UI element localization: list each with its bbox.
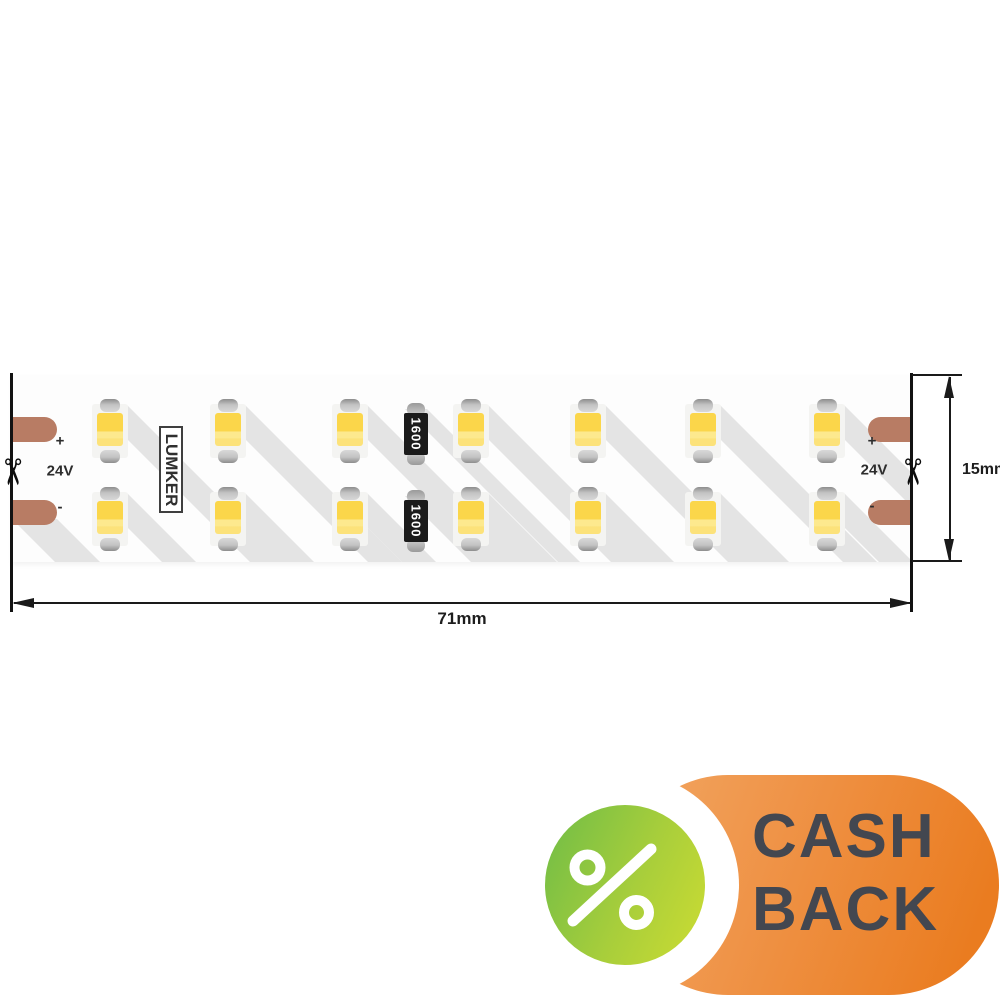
led-emitter <box>690 501 716 534</box>
cashback-green-circle <box>545 805 705 965</box>
led-electrode-top <box>218 399 238 412</box>
led-emitter <box>814 413 840 446</box>
cashback-line1: CASH <box>752 800 939 873</box>
led-electrode-bottom <box>693 538 713 551</box>
smd-led <box>453 399 489 463</box>
led-electrode-top <box>218 487 238 500</box>
led-electrode-bottom <box>817 450 837 463</box>
led-electrode-bottom <box>218 538 238 551</box>
led-electrode-top <box>340 399 360 412</box>
solder-pad-left-minus <box>12 500 57 525</box>
resistor-value-label: 1600 <box>409 505 424 538</box>
solder-pad-right-minus <box>868 500 912 525</box>
brand-logo: LUMKER <box>159 426 183 513</box>
led-emitter <box>458 413 484 446</box>
smd-led <box>809 399 845 463</box>
width-arrow-right <box>890 598 912 608</box>
led-electrode-bottom <box>100 538 120 551</box>
led-electrode-top <box>693 399 713 412</box>
led-emitter <box>690 413 716 446</box>
solder-pad-left-plus <box>12 417 57 442</box>
resistor-body: 1600 <box>404 500 428 542</box>
cut-line-right <box>910 373 913 612</box>
smd-led <box>332 487 368 551</box>
smd-resistor: 1600 <box>404 403 428 465</box>
height-dimension-label: 15mm <box>962 461 1000 479</box>
resistor-value-label: 1600 <box>409 418 424 451</box>
width-dimension-label: 71mm <box>412 609 512 629</box>
smd-led <box>92 399 128 463</box>
voltage-label-left: 24V <box>47 463 74 480</box>
led-electrode-top <box>461 399 481 412</box>
smd-led <box>685 399 721 463</box>
cashback-line2: BACK <box>752 873 939 946</box>
smd-led <box>210 487 246 551</box>
led-electrode-top <box>817 399 837 412</box>
width-arrow-left <box>12 598 34 608</box>
led-emitter <box>337 501 363 534</box>
smd-led <box>332 399 368 463</box>
led-electrode-bottom <box>693 450 713 463</box>
minus-label-left: - <box>58 499 63 516</box>
smd-led <box>210 399 246 463</box>
led-electrode-bottom <box>461 538 481 551</box>
led-electrode-top <box>578 487 598 500</box>
led-strip: 16001600 + 24V - + 24V - LUMKER <box>12 375 912 562</box>
led-electrode-top <box>100 399 120 412</box>
led-emitter <box>97 413 123 446</box>
scissors-icon-left: ✂ <box>0 457 30 487</box>
led-electrode-bottom <box>578 450 598 463</box>
height-extension-bottom <box>912 560 962 562</box>
led-emitter <box>215 501 241 534</box>
minus-label-right: - <box>870 498 875 515</box>
led-electrode-top <box>340 487 360 500</box>
led-emitter <box>337 413 363 446</box>
product-image: 16001600 + 24V - + 24V - LUMKER ✂ ✂ 71mm… <box>0 0 1000 1000</box>
led-electrode-top <box>100 487 120 500</box>
led-electrode-bottom <box>218 450 238 463</box>
plus-label-left: + <box>56 433 65 450</box>
led-electrode-bottom <box>817 538 837 551</box>
led-electrode-top <box>578 399 598 412</box>
cashback-white-circle <box>515 773 739 997</box>
cashback-pill <box>618 775 999 995</box>
led-electrode-top <box>693 487 713 500</box>
voltage-label-right: 24V <box>861 462 888 479</box>
smd-led <box>570 487 606 551</box>
led-electrode-bottom <box>340 450 360 463</box>
percent-icon <box>515 773 739 997</box>
plus-label-right: + <box>868 433 877 450</box>
led-electrode-top <box>817 487 837 500</box>
cast-shadow <box>12 519 100 562</box>
led-emitter <box>458 501 484 534</box>
led-emitter <box>575 413 601 446</box>
cashback-text: CASH BACK <box>752 800 939 946</box>
smd-led <box>570 399 606 463</box>
led-emitter <box>575 501 601 534</box>
led-electrode-bottom <box>100 450 120 463</box>
resistor-body: 1600 <box>404 413 428 455</box>
width-dimension-line <box>14 602 910 604</box>
smd-led <box>92 487 128 551</box>
smd-led <box>453 487 489 551</box>
scissors-icon-right: ✂ <box>894 457 930 487</box>
smd-resistor: 1600 <box>404 490 428 552</box>
height-arrow-down <box>944 539 954 561</box>
led-electrode-bottom <box>461 450 481 463</box>
height-extension-top <box>912 374 962 376</box>
smd-led <box>809 487 845 551</box>
led-electrode-bottom <box>578 538 598 551</box>
brand-logo-text: LUMKER <box>161 433 181 506</box>
height-arrow-up <box>944 376 954 398</box>
cut-line-left <box>10 373 13 612</box>
led-emitter <box>97 501 123 534</box>
smd-led <box>685 487 721 551</box>
led-emitter <box>814 501 840 534</box>
led-electrode-bottom <box>340 538 360 551</box>
led-emitter <box>215 413 241 446</box>
led-electrode-top <box>461 487 481 500</box>
height-dimension-line <box>949 377 951 561</box>
